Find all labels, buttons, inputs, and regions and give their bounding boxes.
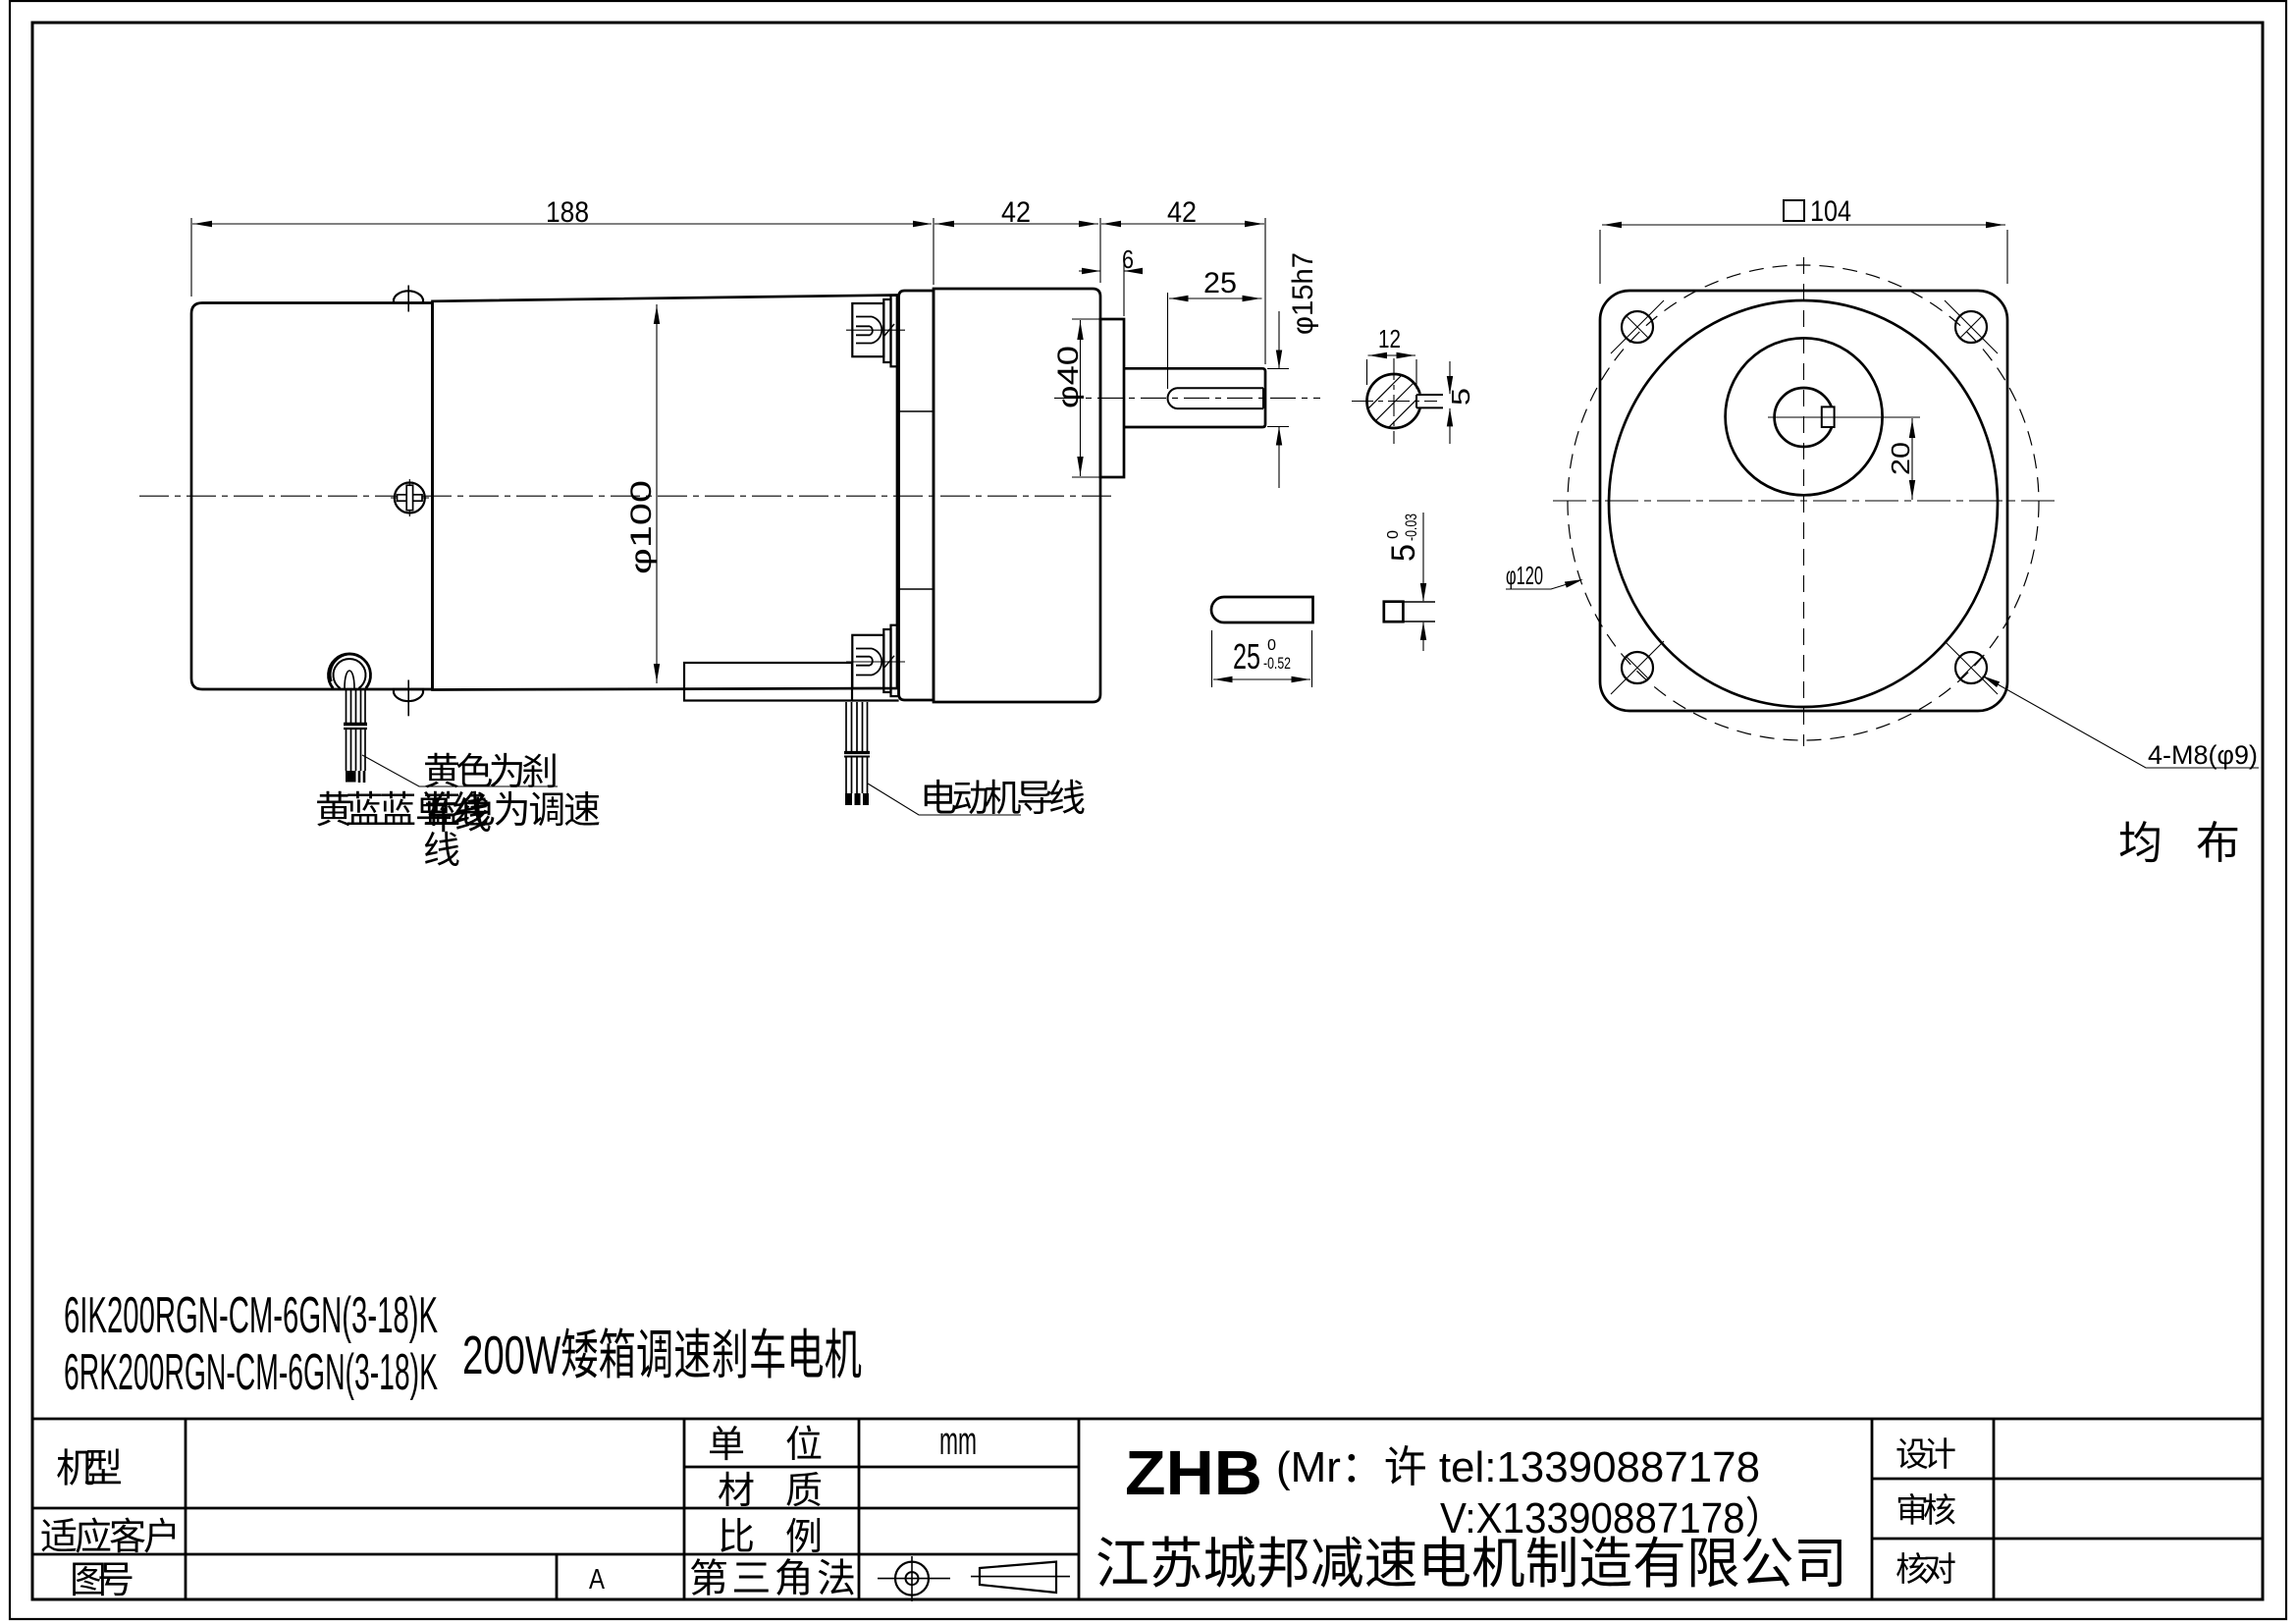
svg-text:单 位: 单 位	[708, 1425, 823, 1466]
svg-text:ZHB: ZHB	[1125, 1437, 1262, 1508]
svg-text:均 布: 均 布	[2118, 818, 2240, 868]
svg-text:42: 42	[1001, 196, 1031, 229]
svg-text:材 质: 材 质	[718, 1471, 823, 1512]
svg-text:线: 线	[423, 831, 460, 872]
svg-text:0: 0	[1267, 637, 1276, 654]
svg-text:5: 5	[1446, 388, 1475, 406]
svg-text:6: 6	[1122, 244, 1134, 274]
svg-text:设计: 设计	[1896, 1436, 1956, 1474]
svg-text:6RK200RGN-CM-6GN(3-18)K: 6RK200RGN-CM-6GN(3-18)K	[64, 1344, 438, 1401]
svg-text:机型: 机型	[56, 1447, 123, 1490]
svg-text:核对: 核对	[1896, 1551, 1956, 1589]
svg-text:φ120: φ120	[1506, 561, 1543, 590]
svg-text:25: 25	[1233, 636, 1260, 676]
svg-text:江苏城邦减速电机制造有限公司: 江苏城邦减速电机制造有限公司	[1095, 1533, 1847, 1595]
svg-text:104: 104	[1810, 195, 1851, 228]
svg-text:A: A	[589, 1564, 606, 1596]
svg-text:黄色为刹: 黄色为刹	[423, 752, 559, 793]
svg-text:0: 0	[1385, 530, 1402, 539]
svg-text:比 例: 比 例	[718, 1517, 823, 1558]
svg-text:25: 25	[1203, 267, 1237, 299]
svg-text:mm: mm	[939, 1420, 977, 1463]
svg-text:φ15h7: φ15h7	[1287, 252, 1319, 335]
svg-text:φ40: φ40	[1052, 346, 1085, 408]
svg-text:4-M8(φ9): 4-M8(φ9)	[2148, 740, 2258, 770]
svg-text:图号: 图号	[70, 1560, 134, 1601]
svg-text:电动机导线: 电动机导线	[920, 779, 1086, 820]
svg-text:-0.52: -0.52	[1263, 654, 1291, 673]
svg-text:20: 20	[1886, 442, 1915, 475]
svg-text:6IK200RGN-CM-6GN(3-18)K: 6IK200RGN-CM-6GN(3-18)K	[64, 1287, 438, 1344]
svg-text:5: 5	[1385, 544, 1422, 562]
svg-text:(Mr：许 tel:13390887178: (Mr：许 tel:13390887178	[1276, 1443, 1760, 1491]
svg-text:蓝单线: 蓝单线	[379, 790, 489, 832]
svg-text:188: 188	[546, 196, 589, 229]
svg-text:12: 12	[1378, 324, 1401, 353]
svg-text:审核: 审核	[1896, 1492, 1956, 1530]
svg-text:200W矮箱调速刹车电机: 200W矮箱调速刹车电机	[462, 1325, 862, 1385]
svg-text:蓝: 蓝	[346, 790, 383, 832]
svg-text:42: 42	[1167, 196, 1197, 229]
svg-text:-0.03: -0.03	[1402, 514, 1420, 541]
svg-text:适应客户: 适应客户	[40, 1517, 181, 1558]
svg-text:φ100: φ100	[625, 480, 658, 574]
